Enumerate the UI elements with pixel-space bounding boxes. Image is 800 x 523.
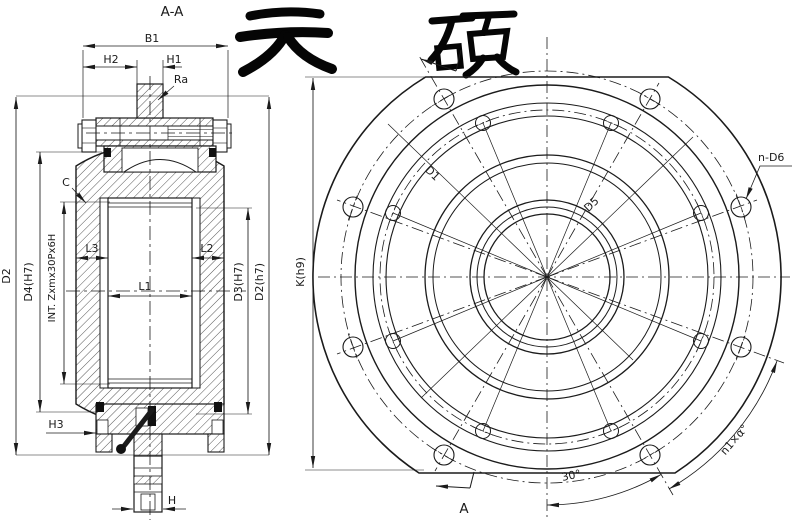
dim-label-d2r: D2(h7) bbox=[253, 263, 266, 301]
foot-hole-right bbox=[212, 420, 223, 435]
dim-label-b1: B1 bbox=[145, 32, 160, 45]
bolt-head-left bbox=[82, 120, 96, 152]
dim-label-h3: H3 bbox=[48, 418, 63, 431]
dim-label-l3: L3 bbox=[85, 242, 98, 255]
dim-label-thread: INT. Zxmx30Px6H bbox=[47, 234, 58, 323]
dim-label-h: H bbox=[168, 494, 176, 507]
dim-label-c: C bbox=[62, 176, 70, 189]
dim-label-ra: Ra bbox=[174, 73, 188, 86]
dim-label-l2: L2 bbox=[200, 242, 213, 255]
hole-callout-leader bbox=[746, 166, 792, 199]
front-view: K(h9) D1 D5 n-D6 n1×α° 30° A bbox=[294, 37, 792, 517]
dim-label-k: K(h9) bbox=[294, 257, 307, 287]
bolt-head-right-facet bbox=[227, 124, 231, 148]
seal-bottom-left bbox=[96, 402, 104, 412]
foot-right bbox=[208, 434, 224, 452]
section-title: A-A bbox=[161, 4, 185, 20]
d5-leader-line bbox=[421, 137, 693, 398]
dim-label-nd6: n-D6 bbox=[758, 151, 784, 164]
seal-left bbox=[104, 148, 111, 157]
sleeve-wall-right bbox=[192, 198, 200, 388]
foot-left bbox=[96, 434, 112, 452]
grease-nipple-head bbox=[116, 444, 126, 454]
dim-label-d3: D3(H7) bbox=[232, 262, 245, 301]
seal-right bbox=[209, 148, 216, 157]
section-arrow-bottom bbox=[436, 472, 474, 488]
seal-bottom-right bbox=[214, 402, 222, 412]
stem-band bbox=[134, 476, 162, 484]
bolt-head-left-facet bbox=[78, 124, 82, 148]
dim-label-spacing: n1×α° bbox=[718, 422, 751, 458]
section-arrow-label: A bbox=[459, 501, 469, 517]
foot-hole-left bbox=[97, 420, 108, 435]
dim-label-d1: D1 bbox=[422, 163, 442, 183]
drawing-canvas: A-A B1 H2 H1 Ra C D2 D4(H7) INT. Zxmx30P… bbox=[0, 0, 800, 523]
dim-label-h1: H1 bbox=[166, 53, 181, 66]
dim-label-30deg: 30° bbox=[560, 467, 582, 484]
bottom-band bbox=[96, 404, 224, 434]
section-view: A-A B1 H2 H1 Ra C D2 D4(H7) INT. Zxmx30P… bbox=[0, 4, 269, 520]
dim-label-d2: D2 bbox=[0, 268, 13, 283]
stem-socket bbox=[141, 494, 155, 510]
center-column bbox=[134, 434, 162, 456]
logo-calligraphy bbox=[240, 12, 516, 75]
dim-label-h2: H2 bbox=[103, 53, 118, 66]
hole-spacing-arc bbox=[669, 361, 777, 489]
sleeve-wall-left bbox=[100, 198, 108, 388]
dim-label-d4: D4(H7) bbox=[22, 262, 35, 301]
dim-label-l1: L1 bbox=[138, 280, 151, 293]
engineering-drawing-sheet: 天硕 bbox=[0, 0, 800, 523]
